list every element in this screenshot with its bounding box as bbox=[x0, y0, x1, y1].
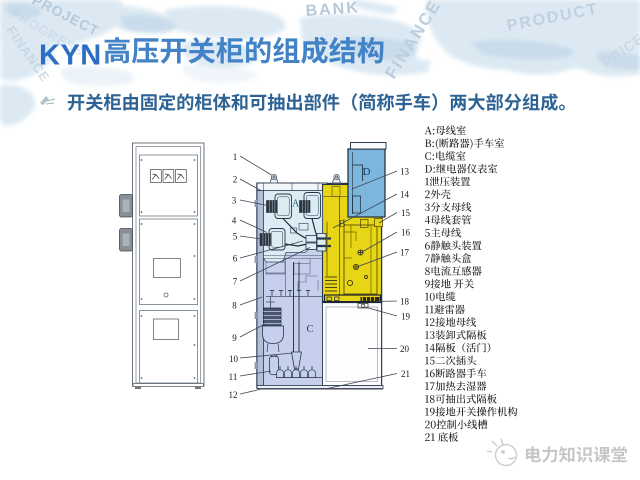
svg-text:9: 9 bbox=[232, 333, 237, 343]
svg-text:KYN: KYN bbox=[39, 40, 102, 72]
svg-text:1: 1 bbox=[233, 152, 238, 162]
svg-text:4: 4 bbox=[232, 216, 237, 226]
svg-text:12: 12 bbox=[229, 390, 238, 400]
svg-text:7: 7 bbox=[233, 277, 238, 287]
svg-text:10: 10 bbox=[229, 354, 239, 364]
svg-text:16: 16 bbox=[401, 228, 411, 238]
svg-text:15: 15 bbox=[401, 208, 411, 218]
svg-text:C: C bbox=[307, 324, 314, 335]
svg-text:3: 3 bbox=[232, 196, 237, 206]
svg-text:A: A bbox=[292, 199, 300, 210]
svg-text:11: 11 bbox=[229, 372, 238, 382]
svg-text:18: 18 bbox=[400, 297, 410, 307]
svg-text:19: 19 bbox=[401, 312, 411, 322]
svg-text:14: 14 bbox=[400, 190, 410, 200]
svg-text:20: 20 bbox=[400, 344, 410, 354]
svg-text:5: 5 bbox=[233, 232, 238, 242]
svg-text:6: 6 bbox=[233, 254, 238, 264]
svg-text:8: 8 bbox=[232, 301, 237, 311]
svg-text:17: 17 bbox=[400, 248, 410, 258]
svg-text:2: 2 bbox=[233, 175, 238, 185]
svg-text:21: 21 bbox=[401, 369, 410, 379]
svg-text:D: D bbox=[363, 166, 371, 178]
svg-text:13: 13 bbox=[400, 167, 410, 177]
